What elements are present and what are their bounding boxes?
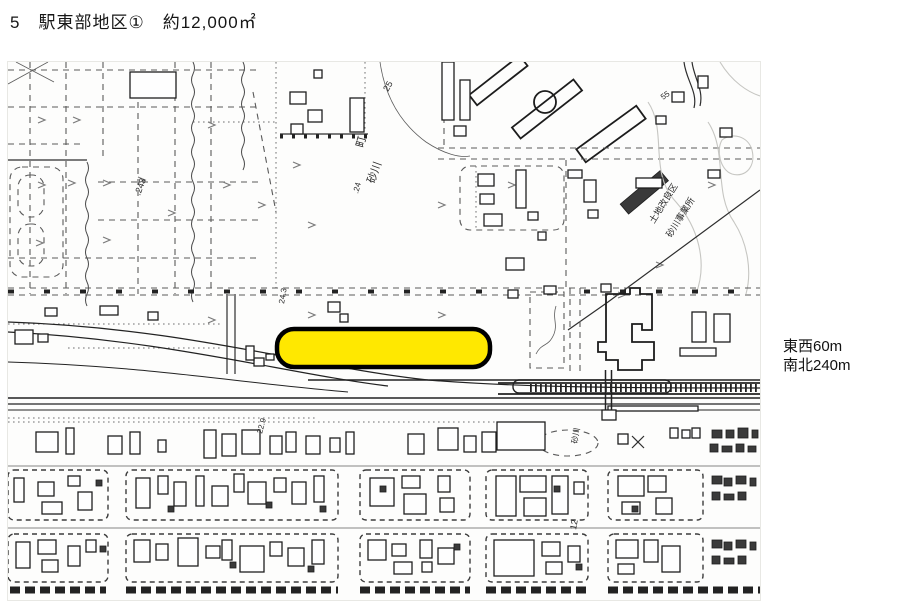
field-mark-chevron <box>103 237 110 243</box>
building-footprint <box>368 540 386 560</box>
field-mark-chevron <box>208 122 215 128</box>
building-footprint <box>616 540 638 558</box>
building-footprint <box>240 546 264 572</box>
contour-line <box>380 62 470 156</box>
building-footprint <box>314 476 324 502</box>
page: { "page": { "title": "5 駅東部地区① 約12,000㎡"… <box>0 0 903 610</box>
building-footprint <box>402 476 420 488</box>
map-label: 砂川 <box>569 427 582 444</box>
building-footprint <box>656 498 672 514</box>
map-label: 55 <box>659 89 672 102</box>
building-footprint <box>538 232 546 240</box>
building-footprint <box>178 538 198 566</box>
building-footprint <box>38 540 56 554</box>
field-mark-chevron <box>36 240 43 246</box>
building-footprint-dark <box>712 430 722 438</box>
building-footprint <box>574 482 584 494</box>
building-footprint <box>497 422 545 450</box>
field-mark-chevron <box>293 162 300 168</box>
building-footprint-dark <box>752 430 758 438</box>
building-footprint <box>656 116 666 124</box>
page-title: 5 駅東部地区① 約12,000㎡ <box>10 8 257 33</box>
building-footprint <box>404 494 426 514</box>
building-footprint <box>680 348 716 356</box>
building-footprint <box>524 498 546 516</box>
field-mark-chevron <box>258 202 265 208</box>
building-footprint <box>108 436 122 454</box>
building-footprint-dark <box>454 544 460 550</box>
map-label: 25 <box>381 79 395 93</box>
building-footprint <box>392 544 406 556</box>
building-footprint <box>714 314 730 342</box>
building-footprint-dark <box>554 486 560 492</box>
building-footprint <box>174 482 186 506</box>
building-footprint <box>274 478 286 492</box>
building-footprint-dark <box>724 558 734 564</box>
map-label: 砂川 <box>365 160 385 185</box>
building-footprint <box>546 562 562 574</box>
building-footprint <box>246 346 254 360</box>
building-footprint <box>222 434 236 456</box>
building-footprint <box>618 434 628 444</box>
building-footprint <box>314 70 322 78</box>
wavy-boundary <box>242 62 245 170</box>
building-footprint <box>66 428 74 454</box>
building-footprint <box>286 432 296 452</box>
field-mark-chevron <box>708 182 715 188</box>
building-footprint <box>584 180 596 202</box>
station-building <box>598 288 654 414</box>
map-label: 24.3 <box>277 287 289 304</box>
building-footprint <box>692 428 700 438</box>
building-footprint-dark <box>712 540 722 548</box>
building-footprint <box>270 542 282 556</box>
building-footprint <box>516 170 526 208</box>
building-footprint <box>130 72 176 98</box>
building-footprint <box>480 194 494 204</box>
building-footprint <box>42 502 62 514</box>
building-footprint <box>568 546 580 562</box>
field-mark-chevron <box>308 312 315 318</box>
building-footprint-dark <box>726 430 734 438</box>
building-footprint-dark <box>576 564 582 570</box>
building-footprint <box>38 482 54 496</box>
building-footprint-dark <box>712 476 722 484</box>
building-footprint <box>45 308 57 316</box>
building-footprint <box>204 430 216 458</box>
map-svg: 町砂川.24.24324.3255522.9土地改良区砂川事業所砂川12 <box>8 62 760 600</box>
building-footprint <box>720 128 732 137</box>
building-footprint <box>270 436 282 454</box>
field-mark-chevron <box>308 222 315 228</box>
building-footprint <box>156 544 168 560</box>
building-footprint <box>698 76 708 88</box>
field-mark-chevron <box>168 210 175 216</box>
highlighted-site-area <box>277 329 490 367</box>
building-footprint <box>454 126 466 136</box>
building-footprint <box>496 476 516 516</box>
field-mark-chevron <box>38 117 45 123</box>
building-footprint-dark <box>736 540 746 548</box>
building-footprint <box>292 482 306 504</box>
building-footprint <box>672 92 684 102</box>
building-footprint-dark <box>738 428 748 438</box>
building-footprint <box>86 540 96 552</box>
building-footprint-dark <box>750 542 756 550</box>
field-mark-chevron <box>438 202 445 208</box>
dimension-north-south: 南北240m <box>783 356 851 375</box>
building-footprint <box>636 178 662 188</box>
building-footprint <box>618 476 644 496</box>
building-footprint <box>464 436 476 452</box>
building-footprint <box>68 476 80 486</box>
field-mark-chevron <box>208 317 215 323</box>
cadastral-map: 町砂川.24.24324.3255522.9土地改良区砂川事業所砂川12 <box>8 62 760 600</box>
building-footprint <box>544 286 556 294</box>
building-footprint <box>266 354 274 360</box>
building-footprint <box>438 476 450 492</box>
building-footprint-dark <box>722 446 732 452</box>
building-footprint <box>708 170 720 178</box>
building-footprint <box>308 110 322 122</box>
map-label: .243 <box>132 177 147 197</box>
building-footprint <box>330 438 340 452</box>
building-footprint <box>478 174 494 186</box>
building-footprint <box>618 564 634 574</box>
building-footprint <box>16 542 30 568</box>
building-footprint <box>460 80 470 120</box>
building-footprint-dark <box>266 502 272 508</box>
field-mark-chevron <box>223 182 230 188</box>
building-footprint <box>520 476 546 492</box>
building-footprint <box>438 428 458 450</box>
building-footprint <box>254 358 264 366</box>
building-footprint <box>440 498 454 512</box>
field-mark-chevron <box>508 182 515 188</box>
map-labels-layer: 町砂川.24.24324.3255522.9土地改良区砂川事業所砂川12 <box>132 79 696 530</box>
building-footprint <box>552 476 568 514</box>
building-footprint-dark <box>632 506 638 512</box>
building-footprint-dark <box>712 492 720 500</box>
building-footprint <box>14 478 24 502</box>
building-footprint-dark <box>320 506 326 512</box>
building-footprint-dark <box>230 562 236 568</box>
dimension-east-west: 東西60m <box>783 337 851 356</box>
building-footprint <box>588 210 598 218</box>
building-footprint <box>602 410 616 420</box>
building-footprint <box>682 430 690 438</box>
building-footprint <box>346 432 354 454</box>
building-footprint <box>408 434 424 454</box>
building-footprint <box>100 306 118 315</box>
building-footprint <box>542 542 560 556</box>
building-footprint <box>340 314 348 322</box>
building-footprint <box>206 546 220 558</box>
building-footprint-dark <box>750 478 756 486</box>
building-footprint <box>158 440 166 452</box>
building-footprint <box>148 312 158 320</box>
building-footprint-dark <box>380 486 386 492</box>
building-footprint-dark <box>710 444 718 452</box>
map-label: .24 <box>351 181 363 195</box>
building-footprint <box>484 214 502 226</box>
building-footprint <box>130 432 140 454</box>
building-footprint <box>482 432 496 452</box>
buildings-layer <box>14 62 732 576</box>
building-footprint <box>196 476 204 506</box>
building-footprint-dark <box>736 444 744 452</box>
building-footprint <box>420 540 432 558</box>
building-footprint <box>438 548 454 564</box>
map-label: 12 <box>568 519 580 531</box>
building-footprint-dark <box>738 556 746 564</box>
field-mark-chevron <box>438 312 445 318</box>
building-footprint <box>288 548 304 566</box>
building-footprint <box>662 546 680 572</box>
building-footprint <box>506 258 524 270</box>
building-footprint-dark <box>100 546 106 552</box>
building-footprint <box>601 284 611 292</box>
building-footprint <box>692 312 706 342</box>
building-footprint <box>134 540 150 562</box>
building-footprint <box>38 334 48 342</box>
building-footprint <box>158 476 168 494</box>
field-mark-chevron <box>38 182 45 188</box>
building-footprint <box>350 98 364 132</box>
building-footprint-dark <box>168 506 174 512</box>
building-footprint <box>212 486 228 506</box>
building-footprint <box>442 62 454 120</box>
building-footprint-dark <box>748 446 756 452</box>
building-footprint <box>306 436 320 454</box>
wavy-boundary <box>86 162 89 306</box>
building-footprint-dark <box>724 494 734 500</box>
building-footprint <box>42 560 58 572</box>
building-footprint <box>394 562 412 574</box>
building-footprint <box>644 540 658 562</box>
field-mark-chevron <box>73 117 80 123</box>
building-footprint <box>222 540 232 560</box>
building-footprint <box>15 330 33 344</box>
building-footprint-dark <box>724 478 732 486</box>
building-footprint <box>136 478 150 508</box>
building-footprint <box>528 212 538 220</box>
building-footprint-dark <box>724 542 732 550</box>
building-footprint-dark <box>738 492 746 500</box>
building-footprint <box>290 92 306 104</box>
building-footprint-dark <box>712 556 720 564</box>
building-footprint <box>328 302 340 312</box>
building-footprint <box>422 562 432 572</box>
building-footprint <box>291 124 303 134</box>
building-footprint-dark <box>96 480 102 486</box>
building-footprint <box>312 540 324 564</box>
building-footprint <box>568 170 582 178</box>
field-mark-chevron <box>68 180 75 186</box>
building-footprint-dark <box>308 566 314 572</box>
building-footprint <box>494 540 534 576</box>
building-footprint <box>508 290 518 298</box>
building-footprint <box>670 428 678 438</box>
building-footprint <box>648 476 666 492</box>
field-mark-chevron <box>103 180 110 186</box>
building-footprint <box>78 492 92 510</box>
building-footprint <box>248 482 266 504</box>
building-footprint-dark <box>736 476 746 484</box>
left-dashed-enclosures <box>10 167 63 277</box>
building-footprint <box>68 546 80 566</box>
building-footprint <box>234 474 244 492</box>
building-footprint <box>36 432 58 452</box>
site-dimensions-label: 東西60m 南北240m <box>783 337 851 375</box>
map-label: 22.9 <box>255 417 268 435</box>
